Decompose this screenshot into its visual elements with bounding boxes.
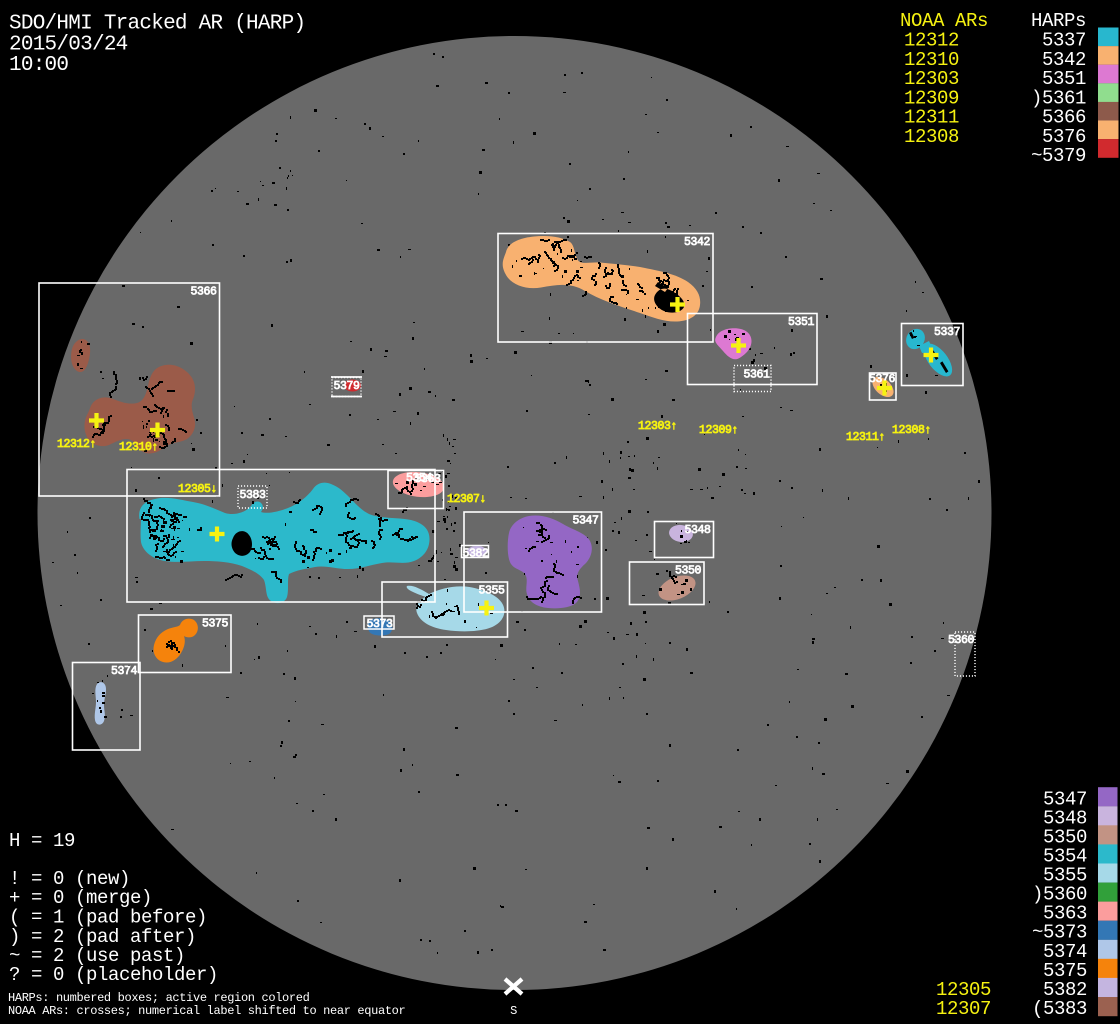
svg-text:5383: 5383 [239, 489, 266, 502]
svg-text:5355: 5355 [478, 585, 505, 598]
svg-text:NOAA ARs: crosses; numerical l: NOAA ARs: crosses; numerical label shift… [8, 1004, 406, 1018]
svg-text:12308: 12308 [904, 126, 959, 148]
svg-text:12307: 12307 [936, 998, 991, 1020]
svg-text:12309↑: 12309↑ [699, 424, 738, 437]
svg-text:HARPs: numbered boxes; active: HARPs: numbered boxes; active region col… [8, 991, 310, 1005]
svg-text:5360: 5360 [948, 634, 975, 647]
svg-text:12307↓: 12307↓ [447, 493, 486, 506]
svg-text:S: S [510, 1004, 517, 1018]
svg-text:5337: 5337 [934, 326, 960, 339]
svg-text:H = 19: H = 19 [9, 830, 75, 852]
svg-text:5373: 5373 [366, 618, 393, 631]
svg-text:? = 0 (placeholder): ? = 0 (placeholder) [9, 964, 218, 986]
svg-text:12312↑: 12312↑ [57, 438, 96, 451]
svg-text:5379: 5379 [333, 380, 360, 393]
svg-text:5342: 5342 [684, 236, 711, 249]
svg-text:5376: 5376 [869, 373, 896, 386]
svg-text:5361: 5361 [743, 369, 770, 382]
svg-text:5374: 5374 [111, 665, 138, 678]
svg-text:12303↑: 12303↑ [638, 420, 677, 433]
svg-text:SDO/HMI Tracked AR (HARP): SDO/HMI Tracked AR (HARP) [9, 13, 305, 36]
svg-text:10:00: 10:00 [9, 54, 68, 77]
svg-text:5363: 5363 [414, 473, 441, 486]
svg-text:5347: 5347 [572, 515, 598, 528]
svg-text:5382: 5382 [462, 548, 489, 561]
svg-text:12308↑: 12308↑ [892, 424, 931, 437]
svg-text:5375: 5375 [202, 618, 229, 631]
svg-text:~5379: ~5379 [1031, 145, 1086, 167]
svg-text:5351: 5351 [788, 316, 815, 329]
svg-text:(5383: (5383 [1032, 998, 1087, 1020]
svg-text:5348: 5348 [684, 524, 711, 537]
svg-text:12311↑: 12311↑ [846, 431, 885, 444]
svg-text:12305↓: 12305↓ [178, 483, 217, 496]
svg-text:5350: 5350 [675, 565, 702, 578]
svg-text:5366: 5366 [190, 286, 217, 299]
svg-text:12310↑: 12310↑ [119, 441, 158, 454]
